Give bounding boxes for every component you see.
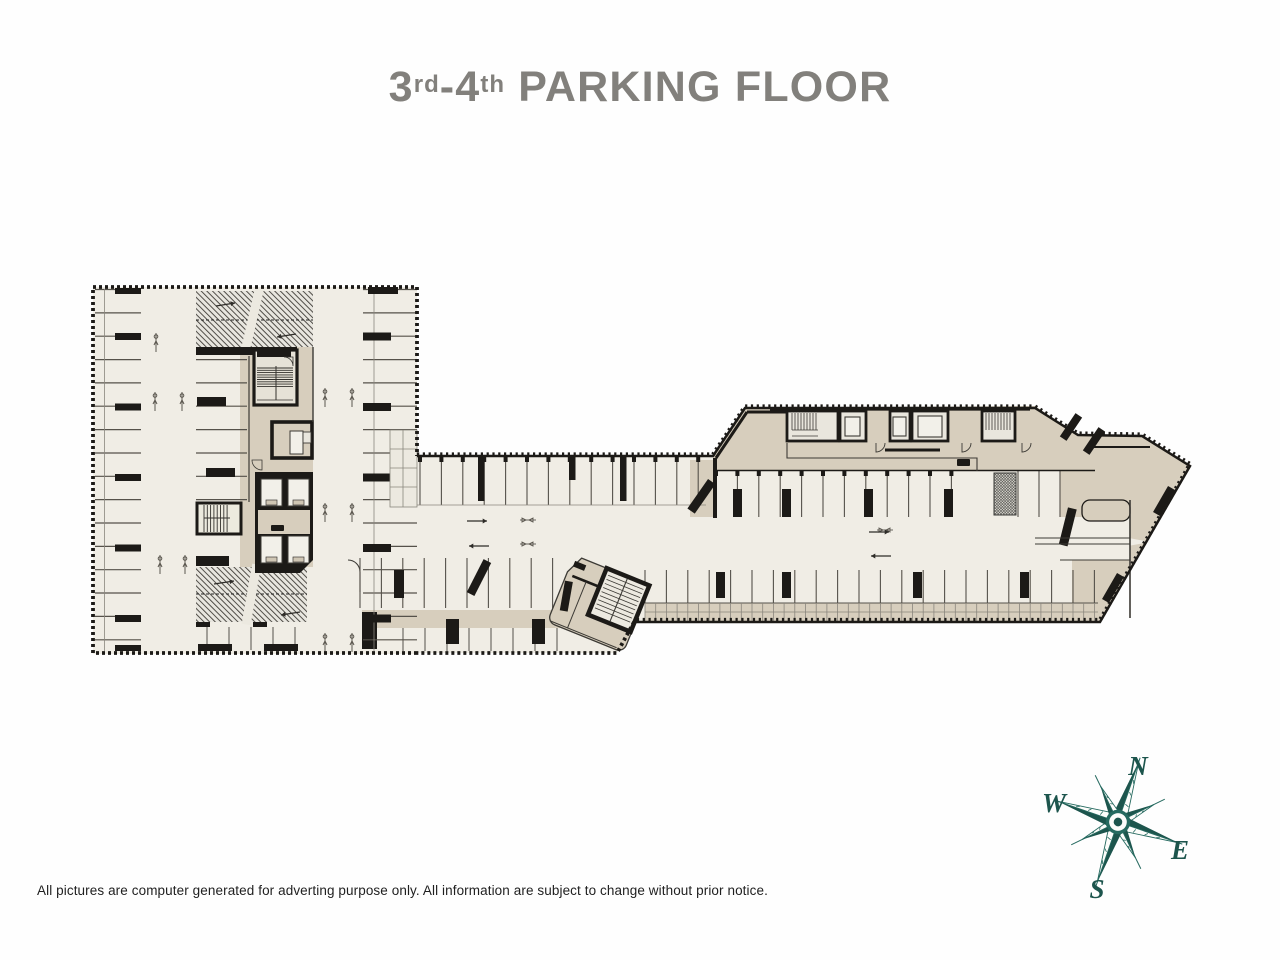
svg-text:N: N [1127,751,1149,781]
svg-text:W: W [1042,788,1068,818]
svg-text:E: E [1170,835,1189,865]
svg-text:S: S [1089,874,1104,904]
